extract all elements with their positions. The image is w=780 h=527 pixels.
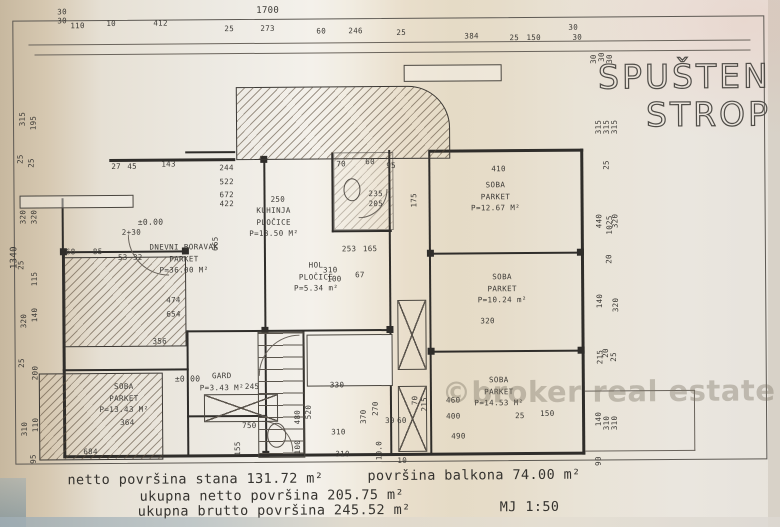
dimension-label: 195 bbox=[29, 116, 38, 131]
dimension-label: 370 bbox=[359, 409, 368, 424]
scanned-floor-plan-page: DNEVNI BORAVAK PARKET P=36.00 M² KUHINJA… bbox=[0, 0, 780, 527]
dimension-label: 320 bbox=[480, 316, 495, 325]
dimension-label: 25 bbox=[609, 352, 618, 362]
dimension-label: 140 bbox=[595, 294, 604, 309]
dimension-label: 320 bbox=[19, 314, 28, 329]
watermark: ©broker real estate bbox=[442, 373, 776, 409]
dimension-label: 750 bbox=[242, 421, 257, 430]
dimension-label: 250 bbox=[271, 195, 286, 204]
dimension-label: 110 bbox=[70, 21, 85, 30]
dimension-label: 110 bbox=[31, 418, 40, 433]
drawing-title: SPUŠTEN STROP bbox=[597, 57, 772, 134]
dimension-label: 665 bbox=[211, 236, 220, 251]
room-area: P=13.43 M² bbox=[93, 404, 155, 416]
dimension-label: 273 bbox=[260, 24, 275, 33]
dimension-label: 410 bbox=[491, 164, 506, 173]
dimension-label: 384 bbox=[464, 31, 479, 40]
room-area: P=10.24 m² bbox=[468, 294, 536, 306]
dimension-label: 400 bbox=[446, 412, 461, 421]
room-floor-type: PARKET bbox=[93, 392, 155, 404]
wall-pier bbox=[386, 326, 393, 333]
dimension-label: 270 bbox=[371, 401, 380, 416]
dimension-label: 412 bbox=[153, 19, 168, 28]
dimension-labels-layer: 3030110104121700252736024625384251503030… bbox=[0, 0, 778, 3]
room-name: KUHINJA bbox=[242, 205, 306, 217]
dimension-label: 140 bbox=[30, 308, 39, 323]
hatched-area-terrace bbox=[236, 86, 451, 160]
dimension-label: 60 bbox=[316, 26, 326, 35]
room-labels-layer: DNEVNI BORAVAK PARKET P=36.00 M² KUHINJA… bbox=[0, 0, 778, 3]
dimension-label: 143 bbox=[161, 159, 176, 168]
dimension-label: 235 bbox=[368, 189, 383, 198]
dimension-label: 244 bbox=[219, 163, 234, 172]
toilet-fixture bbox=[343, 178, 360, 201]
dimension-label: 205 bbox=[369, 199, 384, 208]
dimension-label: 60 bbox=[365, 157, 375, 166]
summary-balkon: površina balkona 74.00 m² bbox=[367, 467, 580, 484]
room-floor-type: PARKET bbox=[461, 191, 529, 203]
dimension-label: 25 bbox=[27, 158, 36, 168]
dimension-label: 68 bbox=[66, 247, 76, 256]
dimension-label: 654 bbox=[166, 309, 181, 318]
dimension-label: 440 bbox=[594, 214, 603, 229]
dimension-label: 165 bbox=[363, 244, 378, 253]
dimension-label: 25 bbox=[509, 33, 519, 42]
dimension-label: 310 bbox=[331, 427, 346, 436]
room-floor-type: PARKET bbox=[140, 253, 228, 265]
dimension-label: 70 bbox=[336, 159, 346, 168]
dimension-label: ±0.00 bbox=[138, 218, 164, 227]
drawing-title-line1: SPUŠTEN bbox=[597, 57, 771, 96]
dimension-label: 90 bbox=[594, 456, 603, 466]
dimension-label: 60 bbox=[397, 416, 407, 425]
scale-label: MJ 1:50 bbox=[500, 499, 560, 515]
room-label: GARD P=3.43 M² bbox=[197, 370, 247, 394]
dimension-label: 155 bbox=[233, 441, 242, 456]
dimension-label: 150 bbox=[540, 409, 555, 418]
dimension-label: 30 bbox=[385, 416, 395, 425]
dimension-label: 20 bbox=[604, 254, 613, 264]
room-area: P=5.34 m² bbox=[288, 283, 344, 295]
dimension-label: 100 bbox=[327, 274, 342, 283]
room-label: KUHINJA PLOČICE P=13.50 M² bbox=[242, 205, 306, 240]
wall-pier bbox=[578, 347, 585, 354]
dimension-label: 310 bbox=[335, 449, 350, 458]
room-floor-type: P=3.43 M² bbox=[197, 382, 247, 394]
wall-segment bbox=[185, 151, 235, 153]
dimension-label: 315 bbox=[18, 112, 27, 127]
dimension-label: 310 bbox=[20, 422, 29, 437]
dimension-label: 490 bbox=[451, 431, 466, 440]
dimension-label: 175 bbox=[409, 193, 418, 208]
room-label: SOBA PARKET P=10.24 m² bbox=[468, 271, 536, 306]
window-top-left bbox=[20, 195, 134, 209]
dimension-label: 320 bbox=[611, 298, 620, 313]
dimension-label: 330 bbox=[330, 380, 345, 389]
dimension-label: 1340 bbox=[9, 246, 19, 269]
dimension-label: 25 bbox=[602, 160, 611, 170]
wall-pier bbox=[577, 249, 584, 256]
dimension-label: 474 bbox=[166, 295, 181, 304]
drawing-title-line2: STROP bbox=[597, 95, 771, 134]
dimension-label: 320 bbox=[18, 210, 27, 225]
dimension-label: ±0.00 bbox=[175, 374, 201, 383]
dimension-label: 95 bbox=[29, 454, 38, 464]
room-name: SOBA bbox=[93, 381, 155, 393]
dimension-label: 10.0 bbox=[374, 441, 383, 460]
dimension-label: 200 bbox=[30, 366, 39, 381]
wall-segment bbox=[332, 230, 392, 232]
dimension-label: 672 bbox=[219, 190, 234, 199]
dimension-label: 115 bbox=[30, 272, 39, 287]
dimension-label: 53 bbox=[118, 253, 128, 262]
room-name: SOBA bbox=[461, 179, 529, 191]
dimension-label: 310 bbox=[323, 265, 338, 274]
stair-void bbox=[306, 334, 392, 387]
dimension-label: 684 bbox=[83, 447, 98, 456]
dimension-label: 310 bbox=[610, 416, 619, 431]
dimension-label: 70 bbox=[410, 395, 419, 405]
room-label: SOBA PARKET P=13.43 M² bbox=[93, 381, 155, 416]
dimension-label: 253 bbox=[342, 244, 357, 253]
dimension-label: 320 bbox=[29, 210, 38, 225]
dimension-label: 10 bbox=[106, 19, 116, 28]
dimension-label: 520 bbox=[304, 405, 313, 420]
dimension-label: 364 bbox=[120, 418, 135, 427]
dimension-label: 32 bbox=[133, 253, 143, 262]
toilet-fixture bbox=[267, 423, 286, 448]
dimension-label: 25 bbox=[396, 28, 406, 37]
dimension-label: 480 bbox=[293, 410, 302, 425]
room-floor-type: PLOČICE bbox=[242, 216, 306, 228]
dimension-label: 246 bbox=[348, 26, 363, 35]
dimension-label: 356 bbox=[153, 337, 168, 346]
room-area: P=36.00 M² bbox=[140, 264, 228, 276]
shaft-x-box bbox=[397, 300, 426, 370]
room-area: P=13.50 M² bbox=[242, 228, 306, 240]
room-floor-type: PARKET bbox=[468, 283, 536, 295]
summary-ukupna-brutto: ukupna brutto površina 245.52 m² bbox=[138, 502, 411, 520]
floor-plan-drawing: DNEVNI BORAVAK PARKET P=36.00 M² KUHINJA… bbox=[0, 0, 780, 527]
dimension-label: 85 bbox=[93, 247, 103, 256]
window-top-center bbox=[404, 64, 502, 82]
wall-pier bbox=[428, 348, 435, 355]
room-name: GARD bbox=[197, 370, 247, 382]
dimension-label: 30 bbox=[568, 23, 578, 32]
dimension-label: 25 bbox=[16, 154, 25, 164]
wall-pier bbox=[427, 250, 434, 257]
dimension-label: 100 bbox=[293, 440, 302, 455]
dimension-label: 95 bbox=[386, 161, 396, 170]
dimension-label: 30 bbox=[57, 7, 67, 16]
dimension-label: 30 bbox=[572, 33, 582, 42]
dimension-label: 320 bbox=[610, 214, 619, 229]
room-name: SOBA bbox=[468, 271, 536, 283]
dimension-label: 10 bbox=[397, 456, 407, 465]
dimension-label: 25 bbox=[17, 358, 26, 368]
dimension-label: 45 bbox=[127, 162, 137, 171]
dimension-label: 522 bbox=[219, 177, 234, 186]
dimension-label: 25 bbox=[515, 411, 525, 420]
room-area: P=12.67 M² bbox=[462, 202, 530, 214]
dimension-label: 2+30 bbox=[122, 228, 141, 237]
dimension-label: 245 bbox=[245, 382, 260, 391]
dimension-label: 1700 bbox=[256, 6, 279, 16]
dimension-label: 422 bbox=[220, 199, 235, 208]
dimension-label: 67 bbox=[355, 270, 365, 279]
dimension-label: 150 bbox=[526, 33, 541, 42]
dimension-label: 30 bbox=[57, 16, 67, 25]
dimension-label: 27 bbox=[111, 162, 121, 171]
shaft-x-box bbox=[204, 394, 278, 423]
dimension-label: 25 bbox=[224, 24, 234, 33]
dimension-label: 215 bbox=[420, 397, 429, 412]
room-label: SOBA PARKET P=12.67 M² bbox=[461, 179, 529, 214]
summary-netto-stana: netto površina stana 131.72 m² bbox=[67, 470, 323, 488]
